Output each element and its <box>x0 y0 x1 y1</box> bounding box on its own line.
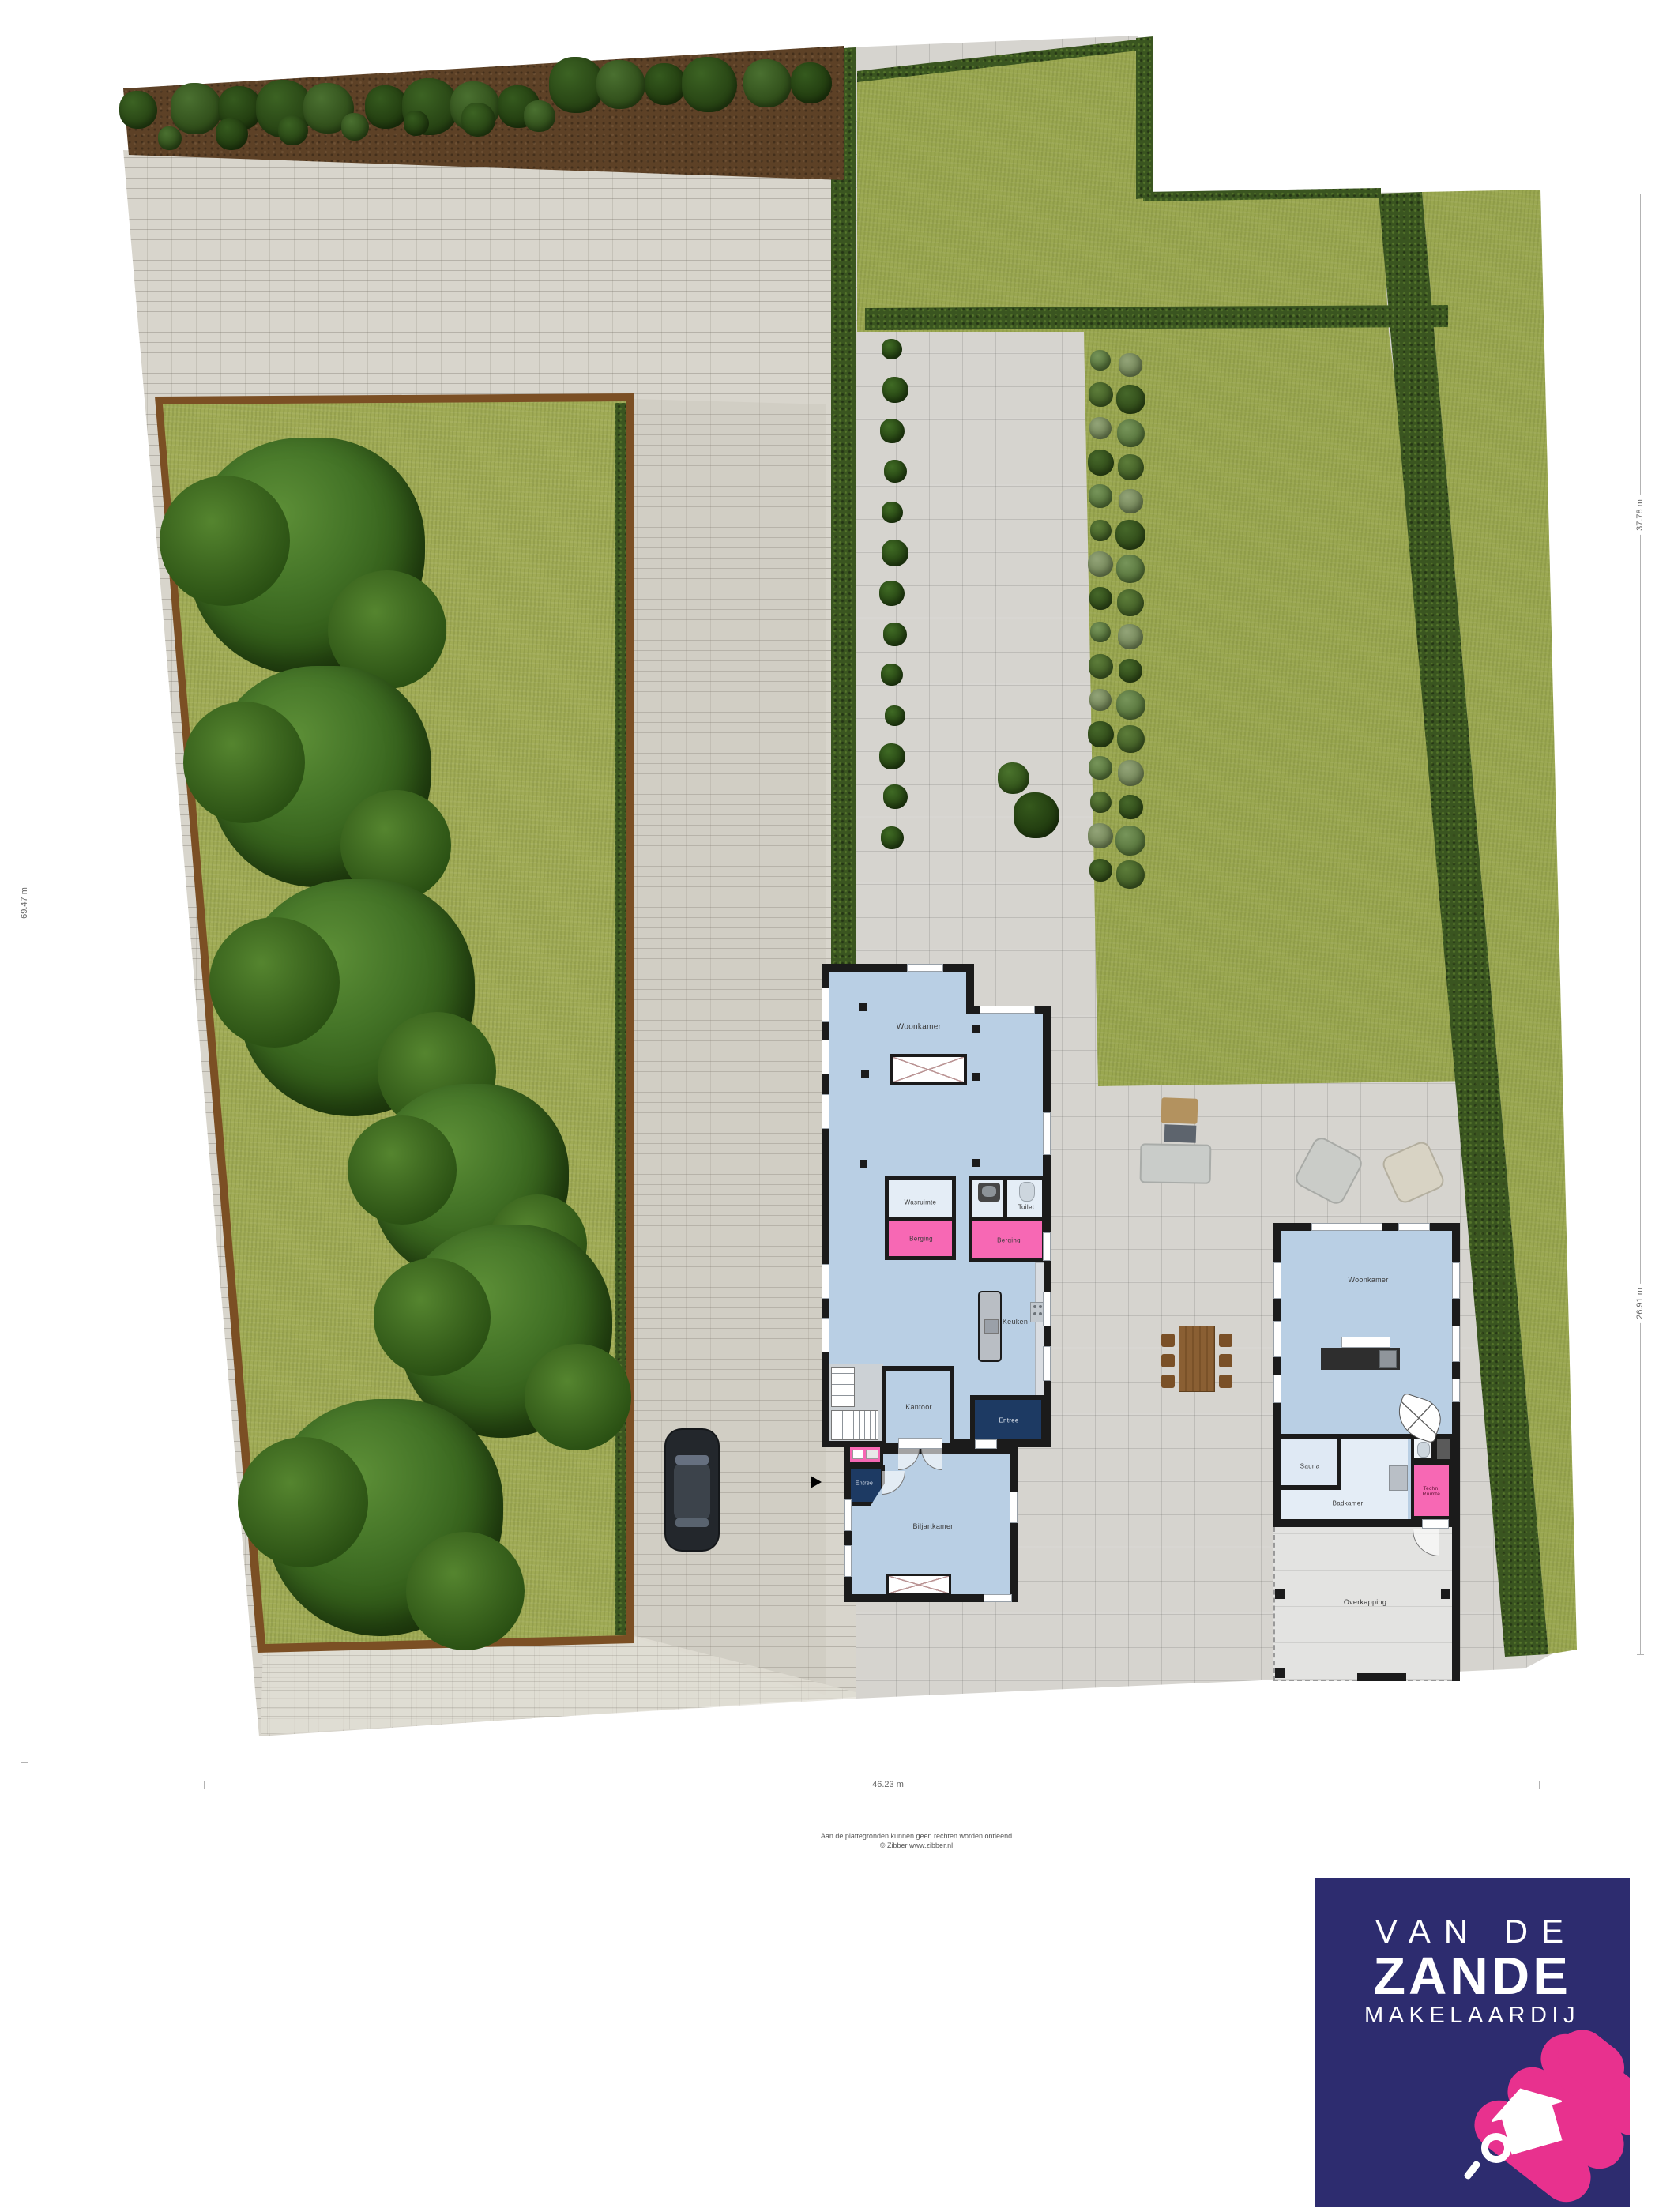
logo-magnifier-icon <box>1481 2133 1511 2163</box>
dimension-label-left: 69.47 m <box>19 883 30 923</box>
dining-chair <box>1219 1375 1232 1388</box>
bush <box>461 103 495 137</box>
bush <box>119 91 157 129</box>
washer-drum <box>982 1186 996 1197</box>
burner <box>1033 1312 1036 1315</box>
logo-house-icon <box>1461 2032 1630 2207</box>
shrub <box>1089 756 1112 780</box>
entrance-arrow-icon <box>811 1476 822 1488</box>
garden-side-table <box>1161 1097 1198 1124</box>
shrub <box>1090 520 1112 541</box>
tick <box>1539 1781 1540 1789</box>
shrub <box>1088 823 1113 848</box>
shrub <box>1089 417 1112 439</box>
shrub <box>1088 721 1114 747</box>
post <box>1275 1668 1285 1678</box>
dimension-label-right-top: 37.78 m <box>1635 495 1646 535</box>
shrub <box>1118 454 1144 480</box>
window <box>1010 1492 1018 1523</box>
disclaimer-line1: Aan de plattegronden kunnen geen rechten… <box>640 1831 1193 1841</box>
window <box>1043 1112 1051 1155</box>
shrub <box>1116 555 1145 583</box>
cypress-tree <box>882 502 903 523</box>
window <box>1398 1223 1430 1231</box>
room-label-biljartkamer: Biljartkamer <box>912 1522 953 1530</box>
burner <box>1039 1305 1042 1308</box>
dining-chair <box>1161 1354 1175 1367</box>
shrub <box>1090 622 1111 642</box>
bush <box>216 118 248 150</box>
cypress-tree <box>880 419 905 443</box>
wc-fixture <box>866 1450 878 1459</box>
brand-logo: VAN DE ZANDE MAKELAARDIJ <box>1315 1878 1630 2207</box>
bush <box>158 126 182 150</box>
dining-chair <box>1219 1334 1232 1347</box>
window <box>980 1006 1035 1014</box>
room-label-techn-ruimte: Techn. Ruimte <box>1416 1486 1447 1497</box>
window <box>1422 1519 1449 1529</box>
shrub <box>1117 419 1145 447</box>
shrub <box>1116 860 1145 889</box>
garden-tree <box>210 666 431 887</box>
logo-line3: MAKELAARDIJ <box>1315 2003 1630 2029</box>
dining-chair <box>1161 1375 1175 1388</box>
bush <box>743 59 792 107</box>
bush <box>596 60 645 109</box>
window <box>984 1594 1012 1602</box>
disclaimer: Aan de plattegronden kunnen geen rechten… <box>640 1831 1193 1850</box>
logo-line2: ZANDE <box>1315 1946 1630 2007</box>
logo-line1: VAN DE <box>1315 1913 1630 1951</box>
room-label-keuken: Keuken <box>1003 1318 1028 1326</box>
guest-kitchen-appliance <box>1379 1350 1397 1368</box>
ceiling-void <box>890 1054 967 1085</box>
toilet-fixture <box>1417 1442 1430 1458</box>
structural-column <box>972 1073 980 1081</box>
dimension-line-right <box>1640 194 1641 1655</box>
shrub <box>1116 385 1145 414</box>
bush <box>682 57 737 112</box>
kitchen-island <box>978 1291 1002 1362</box>
shrub <box>1089 859 1112 882</box>
cypress-tree <box>883 784 908 809</box>
cypress-tree <box>881 826 904 849</box>
room-label-woonkamer-guest: Woonkamer <box>1348 1276 1388 1284</box>
window <box>822 1318 829 1352</box>
bush <box>645 63 687 105</box>
room-label-entree-side: Entree <box>856 1481 873 1487</box>
window <box>822 1040 829 1074</box>
window <box>975 1439 997 1449</box>
burner <box>1039 1312 1042 1315</box>
shrub <box>1115 520 1145 550</box>
cypress-tree <box>883 623 907 646</box>
room-label-overkapping: Overkapping <box>1344 1598 1386 1606</box>
bush <box>278 115 308 145</box>
shrub <box>1089 587 1112 610</box>
cypress-tree <box>879 743 905 769</box>
disclaimer-line2: © Zibber www.zibber.nl <box>640 1841 1193 1850</box>
small-tree <box>1014 792 1059 838</box>
room-label-badkamer: Badkamer <box>1333 1500 1364 1507</box>
room-label-toilet: Toilet <box>1018 1204 1034 1211</box>
car <box>666 1430 718 1550</box>
window <box>1273 1321 1281 1357</box>
window <box>1452 1262 1460 1299</box>
window <box>822 987 829 1022</box>
tick <box>1637 1654 1644 1655</box>
shower-fixture <box>1389 1465 1408 1491</box>
shrub <box>1119 489 1143 513</box>
window <box>1311 1223 1382 1231</box>
window <box>822 1264 829 1299</box>
bush <box>171 83 222 134</box>
shrub <box>1089 382 1113 407</box>
cypress-tree <box>885 705 905 726</box>
shrub <box>1116 690 1145 720</box>
car-roof <box>674 1463 710 1520</box>
dimension-label-bottom: 46.23 m <box>868 1779 908 1790</box>
window <box>1273 1262 1281 1299</box>
toilet-fixture <box>1019 1182 1035 1202</box>
post <box>1275 1589 1285 1599</box>
dining-chair <box>1219 1354 1232 1367</box>
shrub <box>1088 450 1114 476</box>
sink-fixture <box>852 1450 863 1459</box>
room-label-berging-left: Berging <box>909 1236 933 1243</box>
garden-tree <box>188 438 425 675</box>
tick <box>204 1781 205 1789</box>
bush <box>404 111 429 136</box>
shrub <box>1118 760 1144 786</box>
washer-fixture <box>978 1183 1000 1202</box>
structural-column <box>859 1003 867 1011</box>
room-wc-annex <box>847 1444 883 1465</box>
structural-column <box>972 1025 980 1033</box>
shrub <box>1119 795 1143 819</box>
shrub <box>1089 689 1112 711</box>
room-label-berging-right: Berging <box>997 1237 1021 1244</box>
structural-column <box>861 1070 869 1078</box>
guest-kitchen-cabinets <box>1341 1337 1390 1348</box>
post <box>1441 1589 1450 1599</box>
vent-void <box>886 1574 951 1596</box>
shrub <box>1089 484 1112 508</box>
tech-closet-dark <box>1435 1436 1452 1461</box>
window <box>844 1545 852 1577</box>
bush <box>341 113 369 141</box>
bush <box>791 62 832 103</box>
window <box>1043 1232 1051 1261</box>
shrub <box>1089 654 1113 679</box>
shrub <box>1117 589 1144 616</box>
window <box>844 1499 852 1531</box>
garden-tree <box>266 1399 503 1636</box>
room-label-sauna: Sauna <box>1300 1463 1320 1470</box>
structural-column <box>972 1159 980 1167</box>
structural-column <box>860 1160 867 1168</box>
tick <box>1637 194 1644 194</box>
window <box>1043 1346 1051 1381</box>
bush <box>524 100 555 132</box>
overkapping-bottom-wall-segment <box>1357 1673 1406 1681</box>
shrub <box>1090 350 1111 371</box>
stairs-lower-flight <box>831 1410 878 1440</box>
shrub <box>1119 353 1142 377</box>
shrub <box>1119 659 1142 683</box>
shrub <box>1118 624 1143 649</box>
cypress-tree <box>882 339 902 359</box>
window <box>1273 1375 1281 1403</box>
dining-table <box>1179 1326 1215 1392</box>
stairs-upper-flight <box>831 1367 855 1407</box>
dimension-label-right-bottom: 26.91 m <box>1635 1284 1646 1323</box>
small-tree <box>998 762 1029 794</box>
tick <box>1637 984 1644 984</box>
window <box>1452 1326 1460 1362</box>
site-plan-canvas: Woonkamer Wasruimte Toilet Berging Bergi… <box>0 0 1659 2212</box>
car-windshield <box>675 1455 709 1465</box>
cypress-tree <box>882 377 908 403</box>
garden-coffee-table <box>1164 1124 1197 1142</box>
window <box>822 1094 829 1129</box>
window <box>1452 1379 1460 1402</box>
cypress-tree <box>879 581 905 606</box>
shrub <box>1090 792 1112 813</box>
shrub <box>1115 826 1145 856</box>
island-sink <box>984 1319 999 1334</box>
shrub <box>1088 551 1113 577</box>
room-label-entree-front: Entree <box>999 1417 1018 1424</box>
room-label-kantoor: Kantoor <box>905 1403 932 1411</box>
garden-sofa <box>1140 1143 1212 1184</box>
tick <box>21 1762 28 1763</box>
cypress-tree <box>884 460 907 483</box>
overkapping-right-wall <box>1452 1527 1460 1681</box>
car-rear-window <box>675 1518 709 1527</box>
dining-chair <box>1161 1334 1175 1347</box>
room-label-woonkamer-main: Woonkamer <box>897 1023 941 1032</box>
burner <box>1033 1305 1036 1308</box>
tick <box>21 43 28 43</box>
window <box>898 1438 942 1449</box>
lawn-hedge-right-edge <box>615 403 626 1635</box>
logo-magnifier-handle <box>1463 2160 1481 2180</box>
cypress-tree <box>882 540 908 566</box>
room-label-wasruimte: Wasruimte <box>905 1199 937 1206</box>
window <box>1043 1292 1051 1326</box>
shrub <box>1117 725 1145 753</box>
cypress-tree <box>881 664 903 686</box>
window <box>907 964 943 972</box>
garden-tree <box>238 879 475 1116</box>
